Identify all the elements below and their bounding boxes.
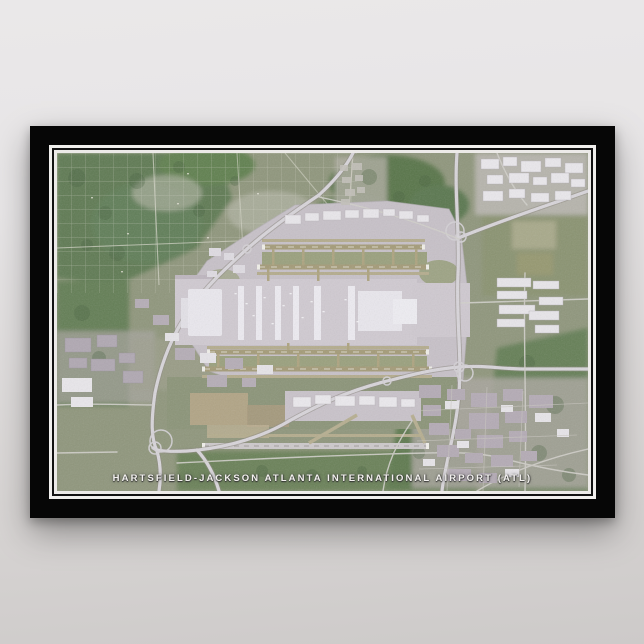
satellite-map-graphic [57, 153, 588, 491]
poster-mockup: HARTSFIELD-JACKSON ATLANTA INTERNATIONAL… [0, 0, 644, 644]
frame-pinstripe-gap: HARTSFIELD-JACKSON ATLANTA INTERNATIONAL… [52, 148, 593, 496]
noise-overlay [57, 153, 588, 491]
frame-inner-border: HARTSFIELD-JACKSON ATLANTA INTERNATIONAL… [54, 150, 591, 494]
frame-pinstripe-outer: HARTSFIELD-JACKSON ATLANTA INTERNATIONAL… [49, 145, 596, 499]
map-title: HARTSFIELD-JACKSON ATLANTA INTERNATIONAL… [57, 473, 588, 484]
satellite-image: HARTSFIELD-JACKSON ATLANTA INTERNATIONAL… [57, 153, 588, 491]
poster-frame: HARTSFIELD-JACKSON ATLANTA INTERNATIONAL… [30, 126, 615, 518]
